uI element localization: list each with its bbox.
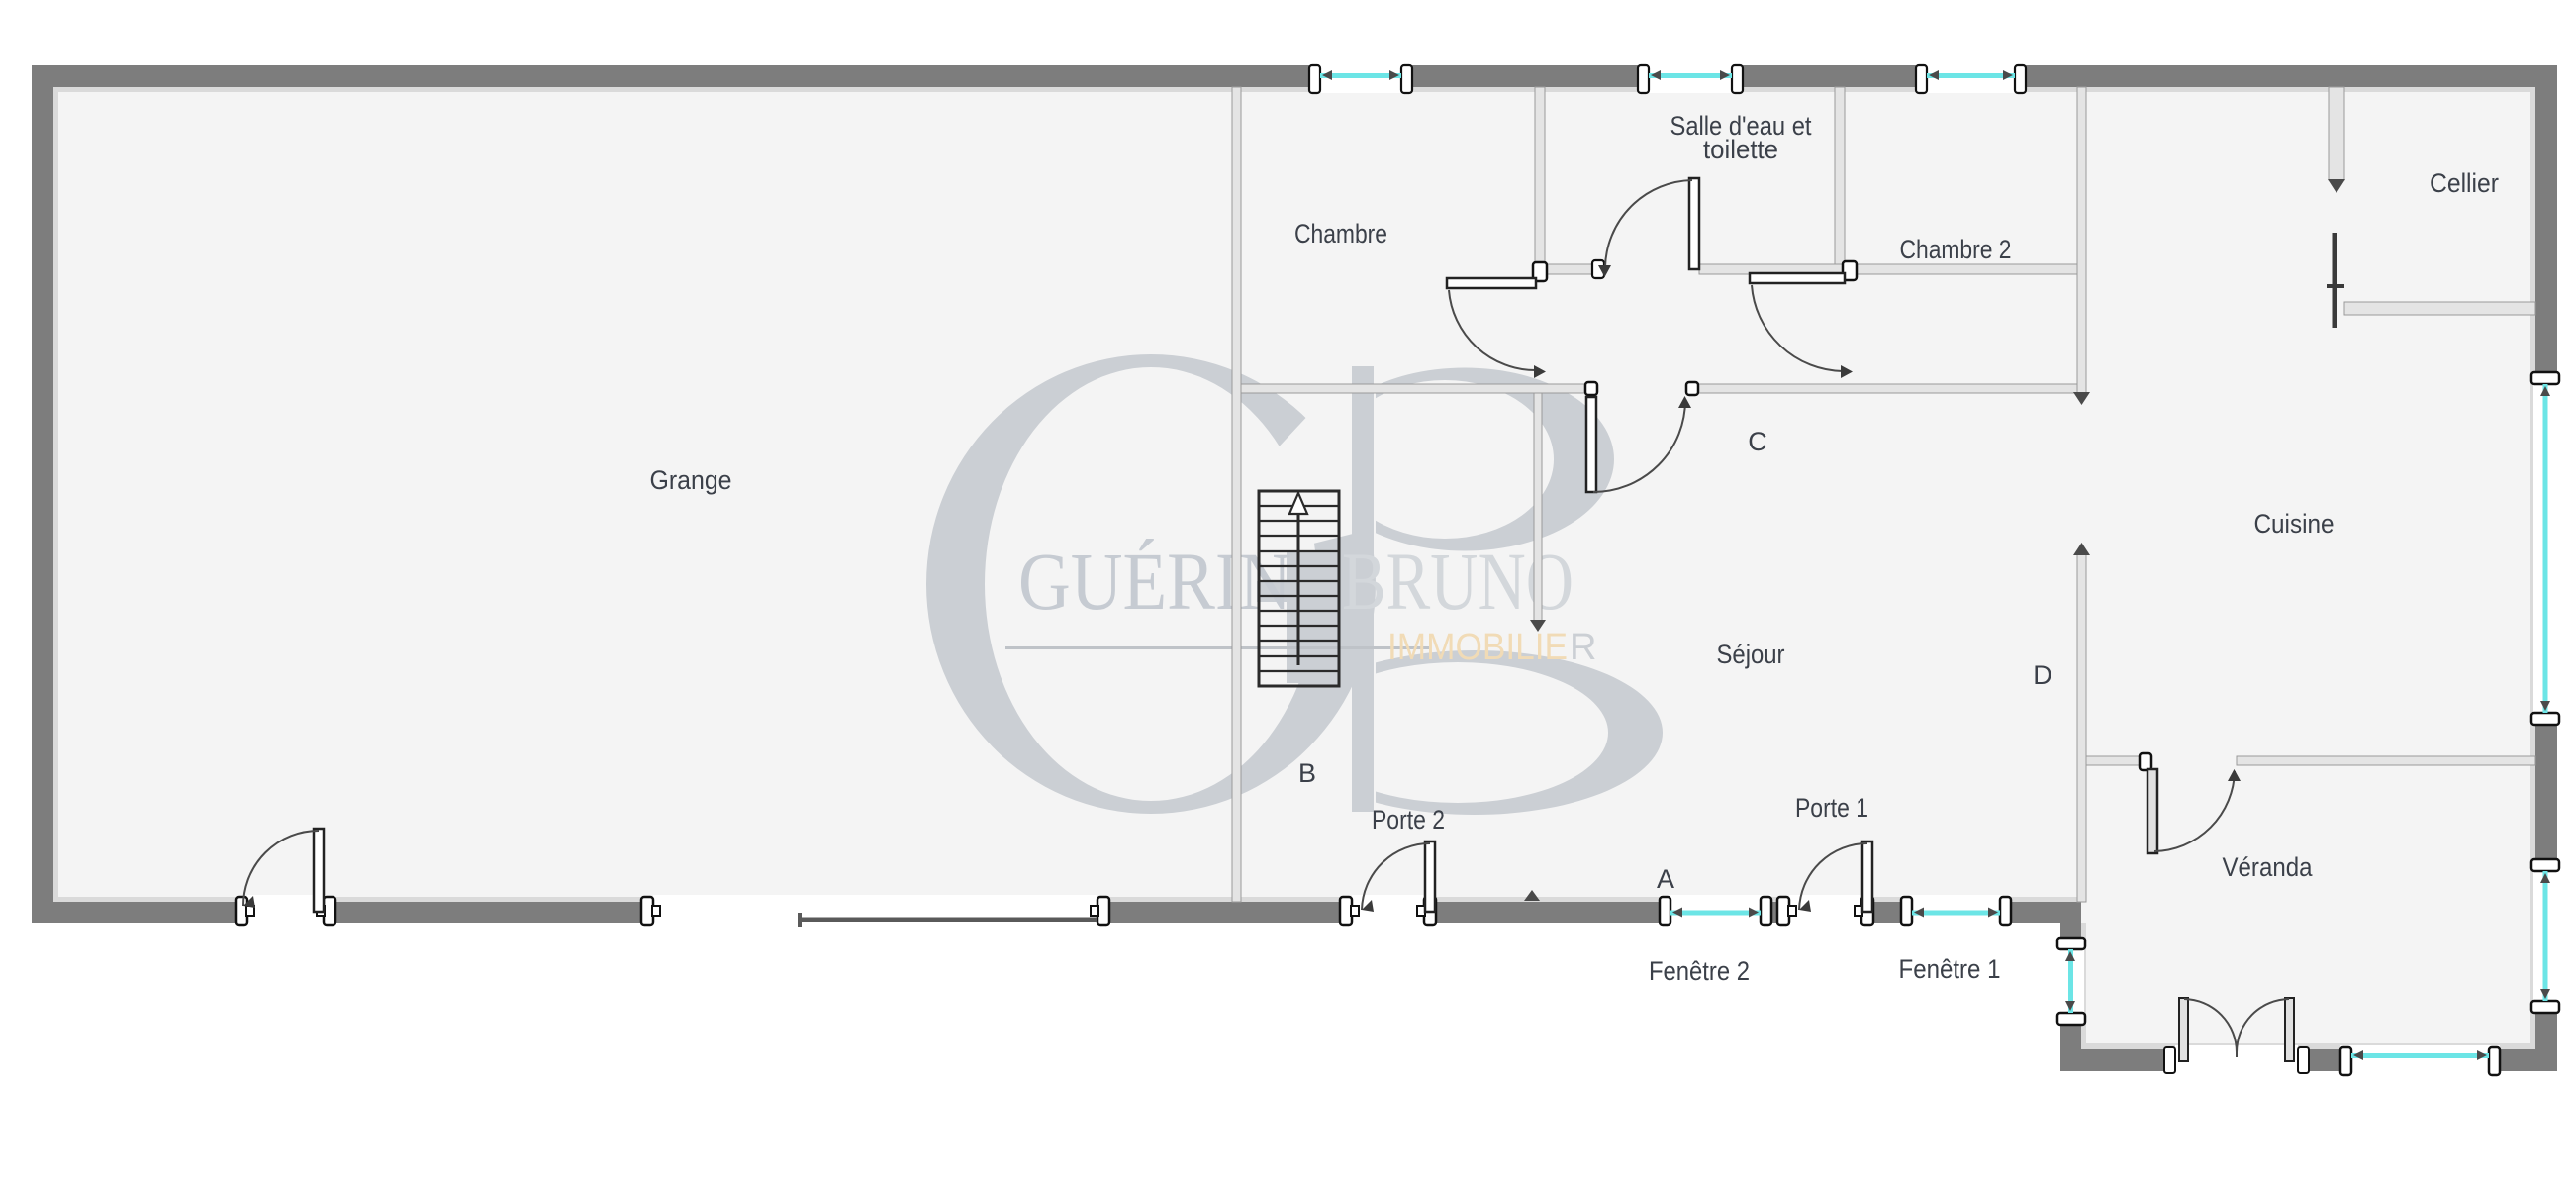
svg-text:Chambre 2: Chambre 2: [1900, 235, 2012, 264]
svg-text:Séjour: Séjour: [1717, 640, 1785, 669]
svg-text:Véranda: Véranda: [2223, 852, 2314, 882]
svg-text:R: R: [1570, 627, 1596, 668]
svg-text:GUÉRIN: GUÉRIN: [1018, 536, 1291, 627]
svg-text:Chambre: Chambre: [1294, 219, 1387, 248]
svg-text:Grange: Grange: [650, 465, 732, 495]
svg-text:B: B: [1298, 758, 1316, 788]
svg-text:Fenêtre 1: Fenêtre 1: [1899, 954, 2001, 984]
svg-text:C: C: [1748, 427, 1767, 456]
svg-text:Cuisine: Cuisine: [2254, 509, 2335, 539]
svg-text:Porte 2: Porte 2: [1372, 805, 1445, 835]
svg-text:A: A: [1657, 864, 1674, 894]
svg-text:toilette: toilette: [1703, 135, 1778, 164]
svg-text:Cellier: Cellier: [2430, 168, 2499, 198]
svg-text:D: D: [2033, 660, 2052, 690]
svg-text:IMMOBILIE: IMMOBILIE: [1387, 627, 1568, 668]
svg-text:Porte 1: Porte 1: [1795, 793, 1868, 823]
svg-text:Fenêtre 2: Fenêtre 2: [1649, 956, 1750, 986]
